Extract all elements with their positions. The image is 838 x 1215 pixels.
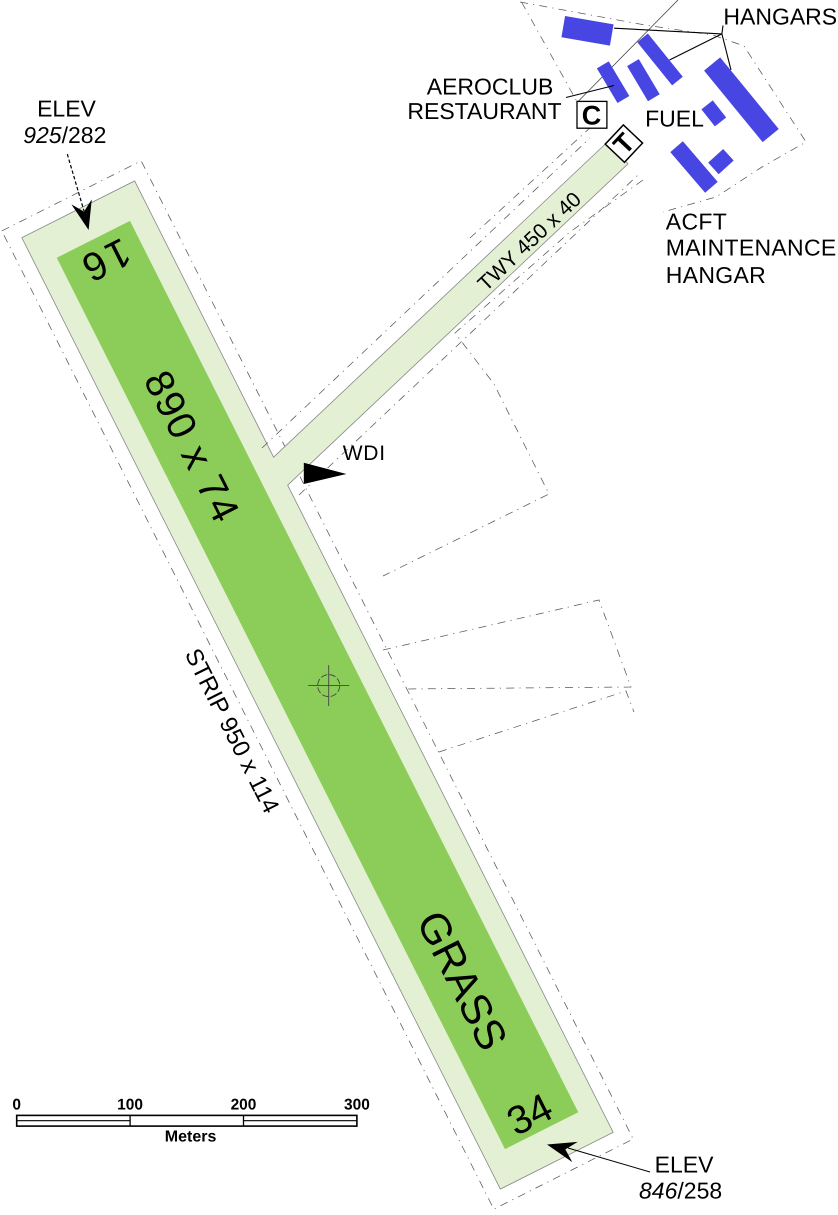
svg-text:ACFT: ACFT	[666, 209, 727, 235]
svg-text:HANGARS: HANGARS	[723, 4, 837, 30]
svg-text:300: 300	[344, 1096, 370, 1113]
svg-text:C: C	[582, 100, 602, 130]
svg-text:AEROCLUB: AEROCLUB	[427, 73, 554, 99]
svg-text:MAINTENANCE: MAINTENANCE	[666, 235, 837, 261]
svg-text:WDI: WDI	[343, 442, 386, 465]
svg-text:0: 0	[12, 1096, 21, 1113]
svg-text:ELEV: ELEV	[37, 96, 96, 122]
svg-text:Meters: Meters	[165, 1128, 217, 1145]
svg-text:RESTAURANT: RESTAURANT	[407, 98, 561, 124]
svg-text:200: 200	[231, 1096, 257, 1113]
svg-text:846/258: 846/258	[639, 1178, 722, 1204]
svg-text:100: 100	[117, 1096, 143, 1113]
svg-text:HANGAR: HANGAR	[666, 262, 766, 288]
svg-text:ELEV: ELEV	[655, 1152, 714, 1178]
svg-text:925/282: 925/282	[23, 122, 106, 148]
svg-text:FUEL: FUEL	[645, 105, 704, 131]
